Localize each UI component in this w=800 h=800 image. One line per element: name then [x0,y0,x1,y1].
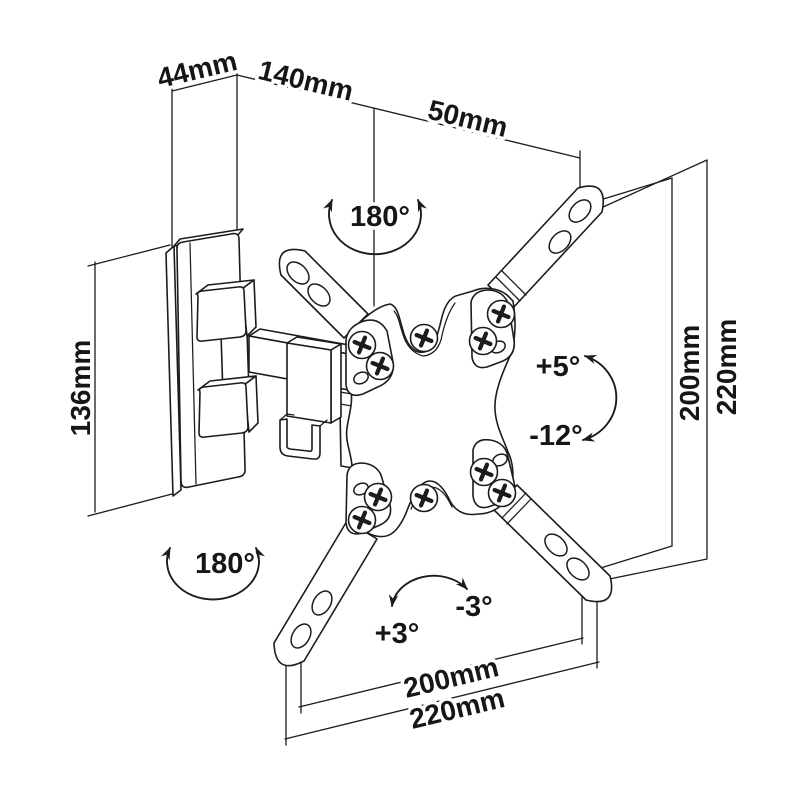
wall-mount-diagram: 44mm 140mm 50mm 136mm 200mm 220mm 200mm … [0,0,800,800]
angle-minus12-label: -12° [529,420,583,452]
strap-bottom-left [274,521,377,666]
strap-top-right [488,186,603,309]
dim-220mm-right-label: 220mm [711,319,742,416]
phillips-screw [349,507,376,534]
phillips-screw [411,485,438,512]
swivel-collar-side [331,344,341,423]
phillips-screw [411,325,438,352]
angle-180-top-label: 180° [350,201,410,233]
ext-line-136-bottom [88,494,172,516]
angle-plus5-label: +5° [536,351,581,383]
phillips-screw [367,353,394,380]
angle-180-bottom-label: 180° [195,548,255,580]
diagram-canvas: 44mm 140mm 50mm 136mm 200mm 220mm 200mm … [0,0,800,800]
ext-line-right-top-outer [592,160,707,212]
ext-line-136-top [88,245,170,266]
dim-200mm-right-label: 200mm [674,325,705,422]
angle-minus3-label: -3° [455,591,492,623]
swivel-collar-front [287,343,331,423]
phillips-screw [470,328,497,355]
phillips-screw [365,484,392,511]
dim-140mm-label: 140mm [255,54,356,107]
dim-136mm-label: 136mm [65,340,96,437]
dim-50mm-label: 50mm [425,94,511,143]
tilt-arc [583,356,616,440]
phillips-screw [471,459,498,486]
angle-plus3-label: +3° [375,618,420,650]
phillips-screw [489,480,516,507]
dim-44mm-label: 44mm [154,45,240,94]
phillips-screw [488,301,515,328]
phillips-screw [349,332,376,359]
